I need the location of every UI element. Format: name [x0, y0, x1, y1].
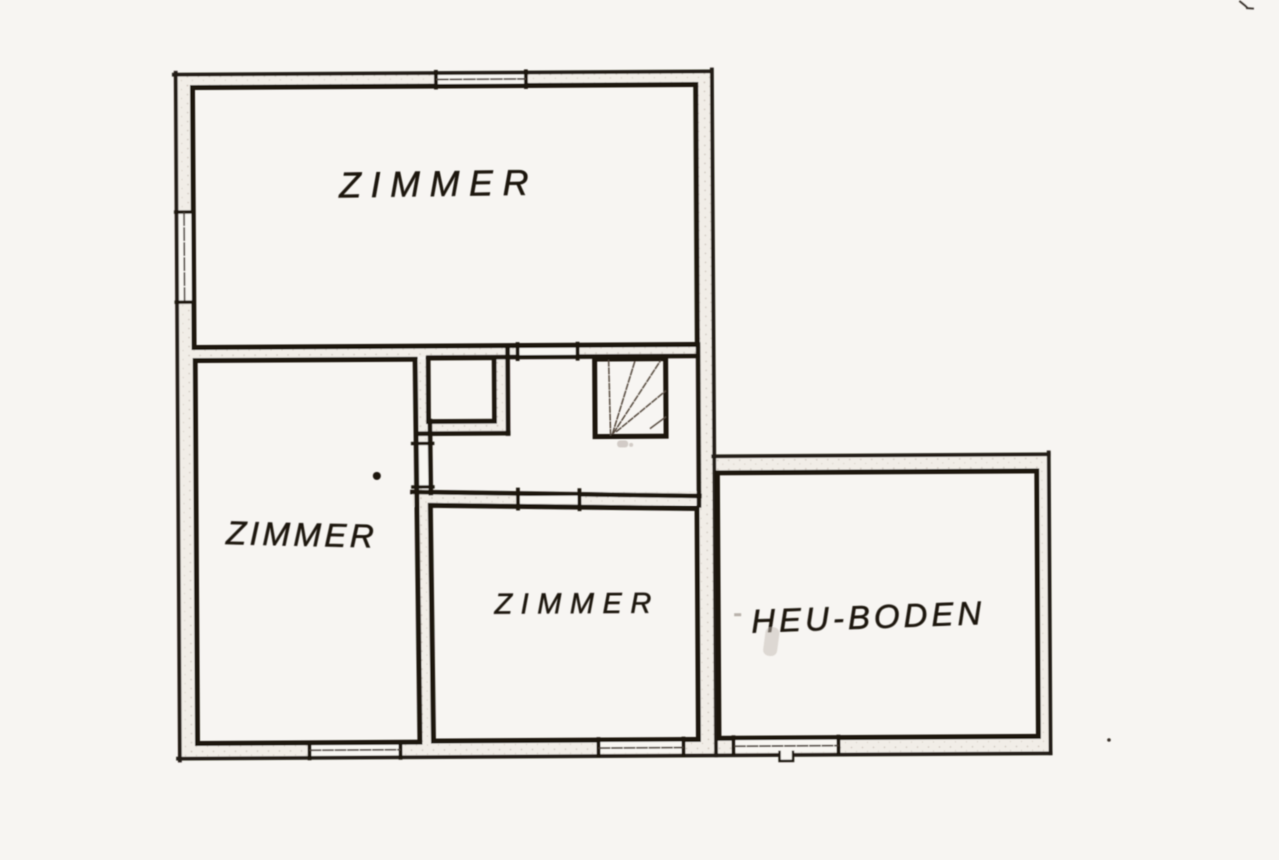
svg-text:ZIMMER: ZIMMER — [493, 588, 660, 621]
svg-text:ZIMMER: ZIMMER — [338, 162, 539, 206]
svg-text:ZIMMER: ZIMMER — [225, 514, 378, 555]
